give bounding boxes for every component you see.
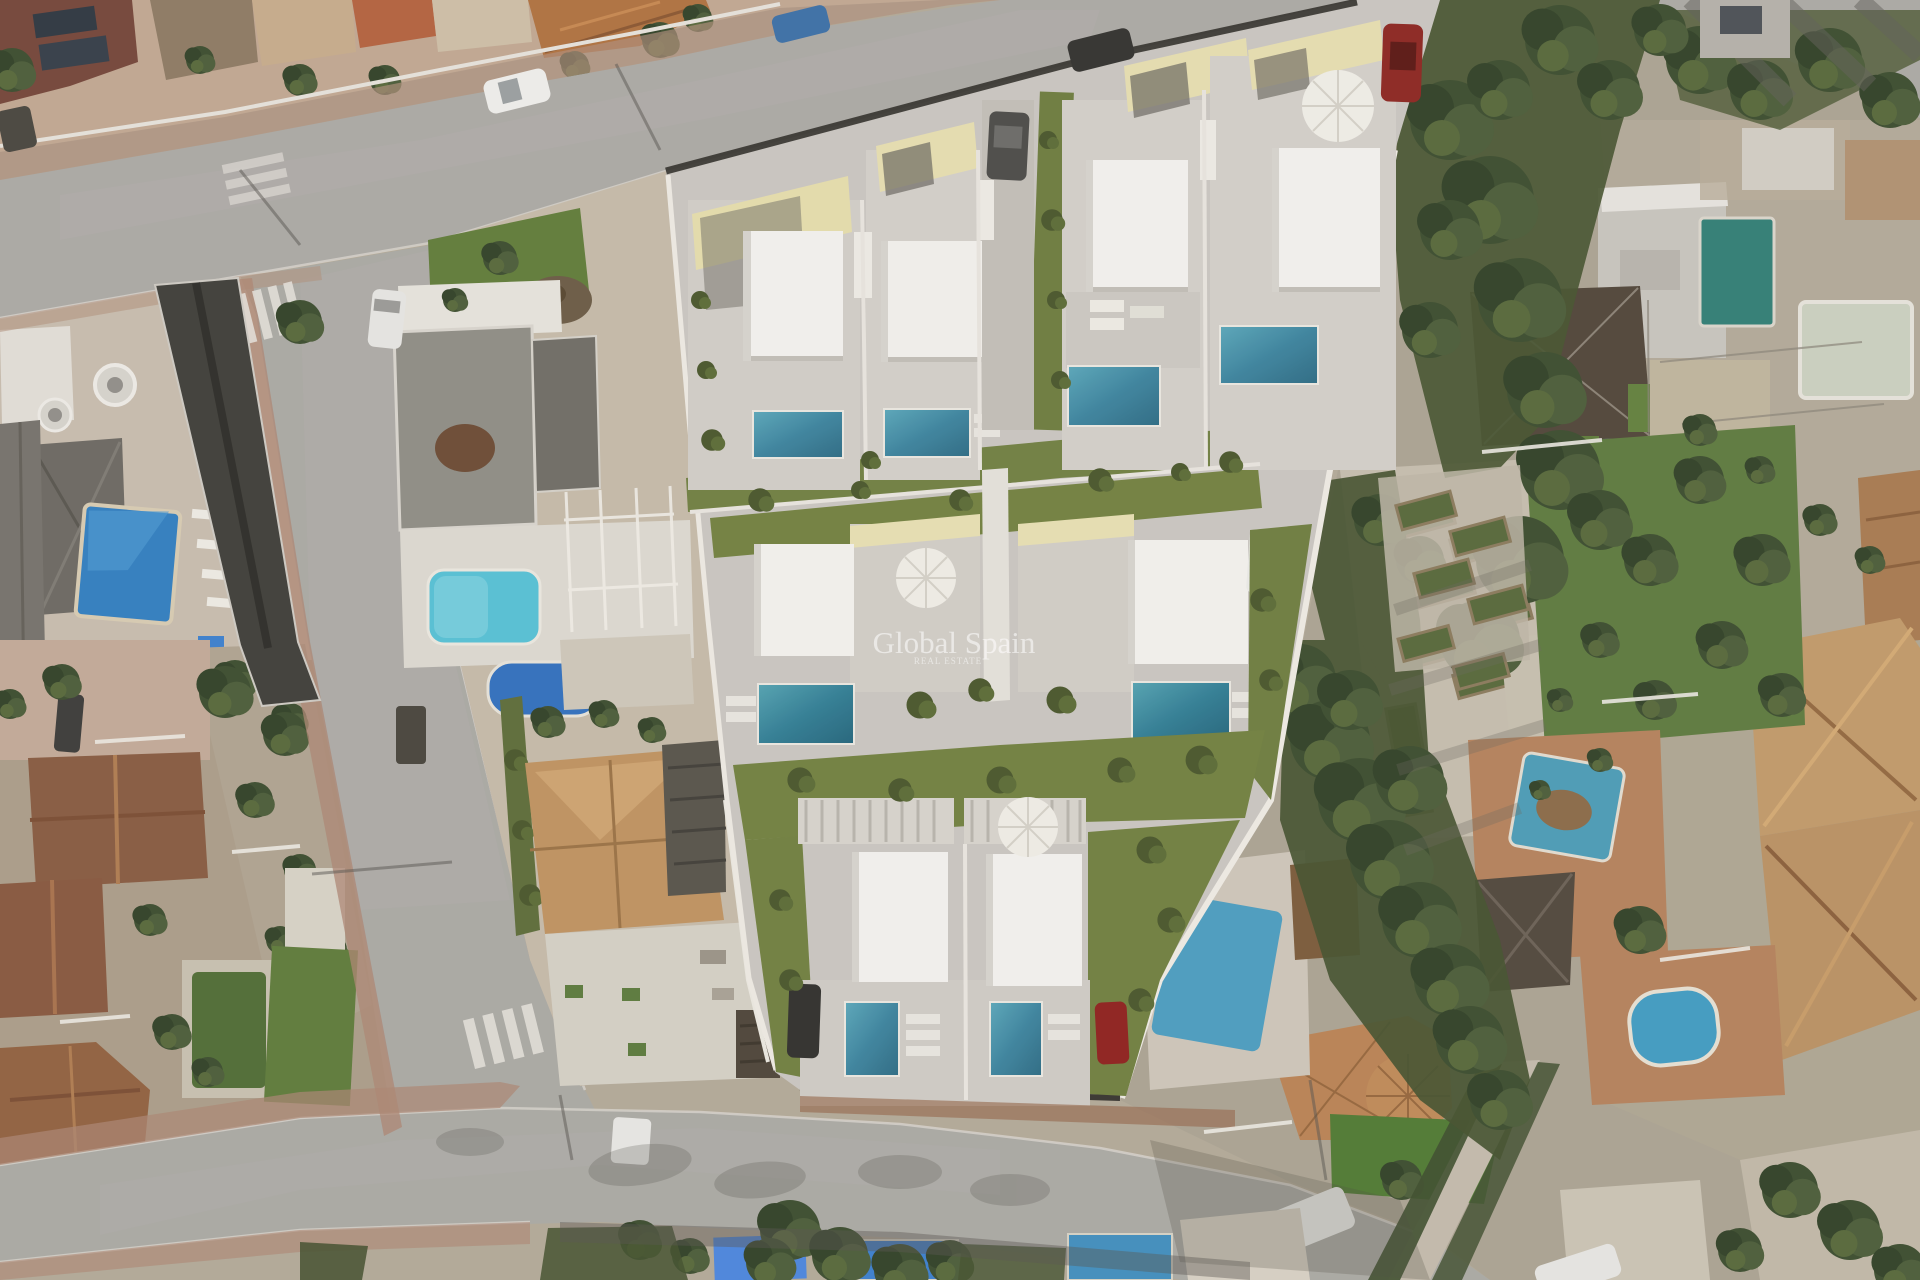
svg-text:Global Spain: Global Spain (873, 625, 1036, 660)
svg-text:REAL ESTATE: REAL ESTATE (914, 656, 982, 666)
